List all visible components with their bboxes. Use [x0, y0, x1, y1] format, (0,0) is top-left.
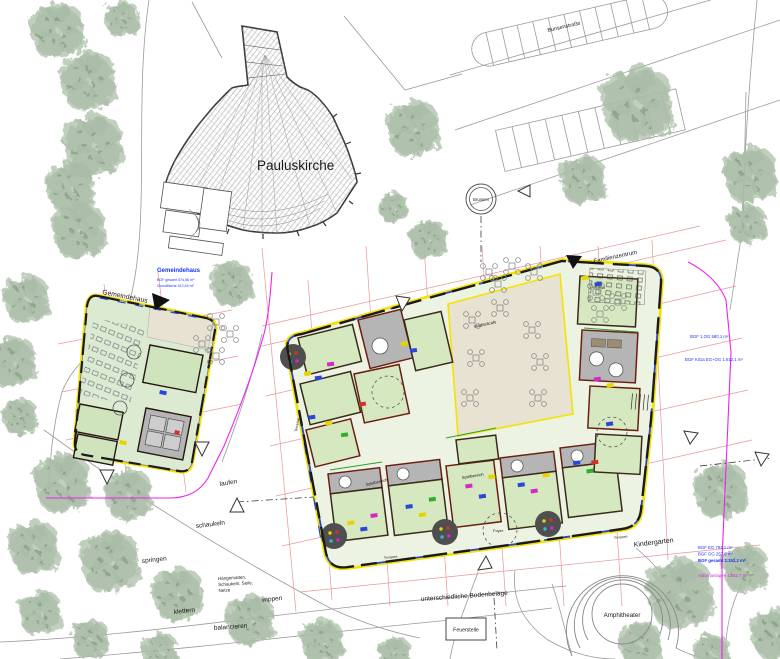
parking-stalls — [486, 0, 650, 65]
label-amphitheater: Amphitheater — [604, 612, 641, 619]
label-bodenbelaege: unterschiedliche Bodenbeläge — [421, 590, 509, 603]
label-pauluskirche: Pauluskirche — [257, 158, 334, 173]
label-brunnen: Brunnen — [473, 197, 490, 202]
annotation-line: BGF gesamt 2.152,2 m² — [698, 558, 746, 563]
label-haengematten-2: Schaukeln, Seile, — [218, 580, 253, 587]
marker-triangle-icon — [195, 442, 209, 456]
annotation-gemeindehaus: Gemeindehaus BGF gesamt 574,56 m² Grundf… — [157, 268, 201, 288]
annotation-line: BGF EG 794,1 m² — [698, 545, 733, 550]
annotation-line: BGF 1.OG 580,1 m² — [690, 334, 729, 339]
church-annex — [160, 182, 231, 255]
courtyard-stadtteilcafe: Stadtteilcafe — [448, 274, 573, 436]
annotation-line: Grundfläche 412,04 m² — [157, 284, 195, 288]
label-laufen: laufen — [219, 478, 238, 488]
marker-triangle-icon — [755, 452, 769, 466]
annotation-line: BGF KiGa EG+OG 1.612,1 m² — [685, 357, 743, 362]
annotation-title: Gemeindehaus — [157, 268, 201, 274]
label-schaukeln: schaukeln — [195, 519, 225, 530]
gemeindehaus-wc-block — [138, 408, 192, 460]
label-springen: springen — [141, 555, 167, 565]
label-terrasse-2: Terrasse — [614, 535, 628, 540]
gemeindehaus-building: Gemeindehaus — [73, 289, 215, 471]
label-haengematten-3: Netze — [218, 587, 230, 593]
annotation-kiga-right: BGF 1.OG 580,1 m² BGF KiGa EG+OG 1.612,1… — [685, 334, 743, 362]
annotation-line: BGF gesamt 574,56 m² — [157, 278, 195, 282]
annotation-line: BGF OG 257,8 m² — [698, 552, 733, 557]
annotation-line-outdoor: Außenanlagen 4.052,7 m² — [698, 573, 748, 578]
pauluskirche-building: Pauluskirche — [160, 26, 361, 255]
label-kindergarten: Kindergarten — [633, 537, 674, 549]
label-wippen: wippen — [260, 595, 283, 604]
main-building: Stadtteilcafe — [280, 250, 674, 568]
street-label: Bunsenstraße — [547, 21, 581, 34]
site-plan-canvas: Bunsenstraße Pauluskirche — [0, 0, 780, 659]
feuerstelle: Feuerstelle — [446, 618, 486, 640]
label-foyer: Foyer — [493, 528, 504, 533]
marker-triangle-icon — [230, 498, 244, 512]
marker-triangle-icon — [478, 556, 492, 570]
brunnen-fountain: Brunnen — [466, 184, 496, 214]
label-cafeteria: Cafeteria — [590, 285, 605, 290]
marker-triangle-icon — [684, 431, 698, 444]
label-feuerstelle: Feuerstelle — [453, 628, 479, 634]
